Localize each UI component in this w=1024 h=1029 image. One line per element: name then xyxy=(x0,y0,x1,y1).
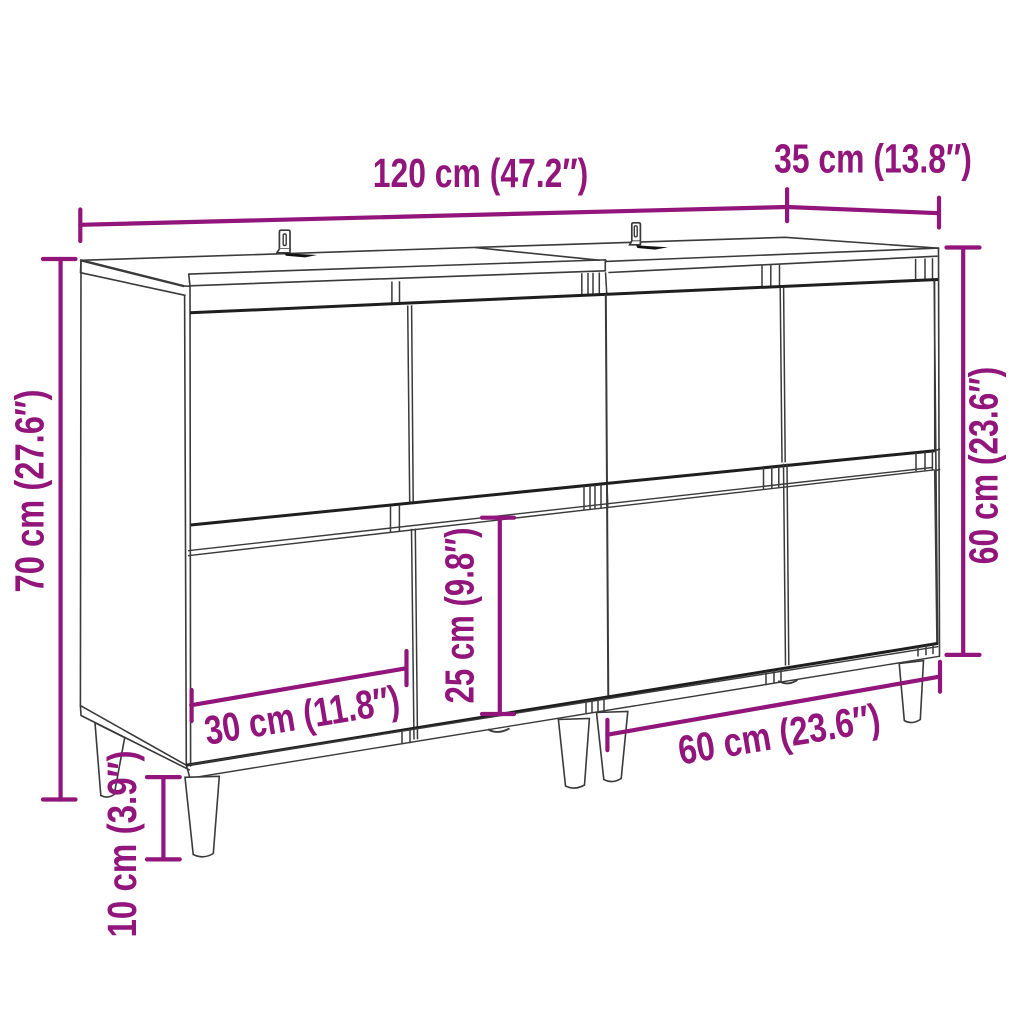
svg-text:35 cm (13.8″): 35 cm (13.8″) xyxy=(774,136,972,182)
svg-text:60 cm (23.6″): 60 cm (23.6″) xyxy=(961,367,1007,564)
svg-text:10 cm (3.9″): 10 cm (3.9″) xyxy=(99,751,145,938)
svg-text:70 cm (27.6″): 70 cm (27.6″) xyxy=(7,390,53,593)
svg-text:25 cm (9.8″): 25 cm (9.8″) xyxy=(437,528,483,704)
svg-text:120 cm (47.2″): 120 cm (47.2″) xyxy=(373,150,589,196)
